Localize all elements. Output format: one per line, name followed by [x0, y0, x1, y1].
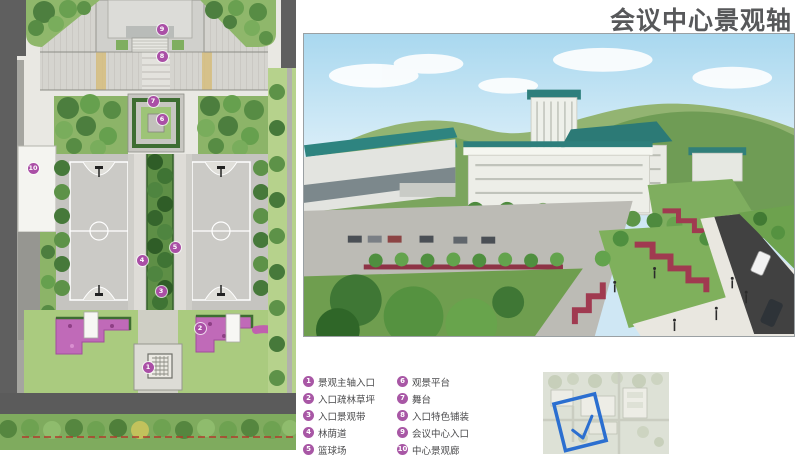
- site-plan-drawing: [0, 0, 296, 450]
- aerial-rendering-image: [304, 34, 794, 336]
- page-title: 会议中心景观轴: [610, 1, 792, 37]
- plan-marker-1: 1: [143, 362, 154, 373]
- legend-label-9: 会议中心入口: [412, 426, 469, 440]
- legend-badge-9: 9: [397, 427, 408, 438]
- legend-item-9: 9 会议中心入口: [397, 427, 469, 438]
- legend-label-6: 观景平台: [412, 375, 450, 389]
- legend-item-1: 1 景观主轴入口: [303, 376, 375, 387]
- plan-marker-6: 6: [157, 114, 168, 125]
- legend-label-3: 入口景观带: [318, 409, 366, 423]
- legend-column-1: 1 景观主轴入口 2 入口疏林草坪 3 入口景观带 4 林荫道 5 篮球场: [303, 376, 375, 461]
- legend-label-4: 林荫道: [318, 426, 347, 440]
- plan-entry-garden: [24, 310, 294, 393]
- legend-item-8: 8 入口特色铺装: [397, 410, 469, 421]
- legend-column-2: 6 观景平台 7 舞台 8 入口特色铺装 9 会议中心入口 10 中心景观廊: [397, 376, 469, 461]
- legend-badge-1: 1: [303, 376, 314, 387]
- foreground-plaza: [304, 201, 633, 336]
- plan-marker-9: 9: [157, 24, 168, 35]
- legend-item-7: 7 舞台: [397, 393, 469, 404]
- legend-item-6: 6 观景平台: [397, 376, 469, 387]
- plan-street-trees: [0, 414, 296, 450]
- legend-label-8: 入口特色铺装: [412, 409, 469, 423]
- legend-badge-6: 6: [397, 376, 408, 387]
- plan-marker-5: 5: [170, 242, 181, 253]
- presentation-board: 1 2 3 4 5 6 7 8 9 10 会议中心景观轴: [0, 0, 800, 450]
- aerial-rendering: [303, 33, 795, 337]
- plan-marker-8: 8: [157, 51, 168, 62]
- plan-conference-building: [96, 0, 204, 52]
- legend-item-2: 2 入口疏林草坪: [303, 393, 375, 404]
- keymap-drawing: [543, 372, 669, 454]
- location-keymap: [543, 372, 669, 454]
- legend-item-4: 4 林荫道: [303, 427, 375, 438]
- plan-marker-3: 3: [156, 286, 167, 297]
- legend-label-1: 景观主轴入口: [318, 375, 375, 389]
- legend-badge-8: 8: [397, 410, 408, 421]
- plan-marker-10: 10: [28, 163, 39, 174]
- legend-badge-4: 4: [303, 427, 314, 438]
- plan-central-garden: [54, 94, 268, 156]
- plan-marker-2: 2: [195, 323, 206, 334]
- legend-label-2: 入口疏林草坪: [318, 392, 375, 406]
- plan-marker-7: 7: [148, 96, 159, 107]
- legend-badge-7: 7: [397, 393, 408, 404]
- plan-marker-4: 4: [137, 255, 148, 266]
- legend-badge-3: 3: [303, 410, 314, 421]
- plan-right-verge: [268, 68, 296, 393]
- legend-badge-2: 2: [303, 393, 314, 404]
- site-plan: 1 2 3 4 5 6 7 8 9 10: [0, 0, 296, 450]
- legend-label-7: 舞台: [412, 392, 431, 406]
- legend: 1 景观主轴入口 2 入口疏林草坪 3 入口景观带 4 林荫道 5 篮球场 6: [303, 376, 469, 461]
- legend-item-3: 3 入口景观带: [303, 410, 375, 421]
